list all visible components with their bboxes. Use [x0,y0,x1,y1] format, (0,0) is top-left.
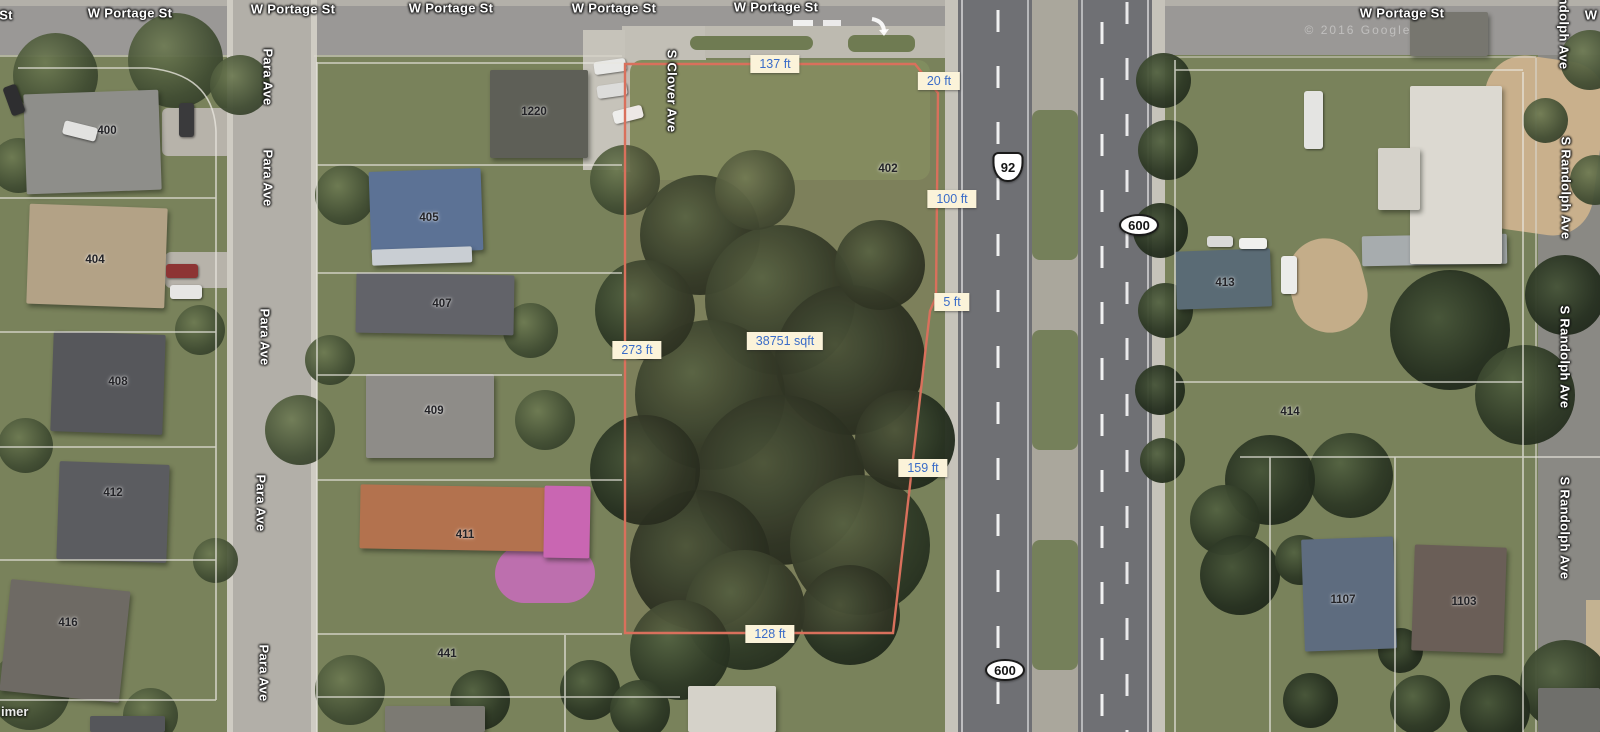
house-number: 441 [437,648,456,660]
house-number: 404 [85,254,104,266]
street-label: S Randolph Ave [1558,306,1573,409]
house-number: 1220 [521,106,547,118]
street-label: W Portage St [251,2,336,17]
house-number: 1103 [1452,596,1477,608]
street-label: S Randolph Ave [1558,477,1573,580]
house-number: 407 [432,298,451,310]
parcel-area-label: 38751 sqft [747,332,823,350]
house-number: 414 [1280,406,1299,418]
house-number: 1107 [1331,594,1356,606]
house-number: 409 [424,405,443,417]
street-label: W Portage St [409,1,494,16]
parcel-measurement-label: 128 ft [745,625,794,643]
street-label: W Portage St [88,6,173,21]
street-label: Para Ave [261,149,276,206]
map-canvas[interactable]: StW Portage StW Portage StW Portage StW … [0,0,1600,732]
street-label: W Portage St [1360,6,1445,21]
house-number: 416 [58,617,77,629]
street-label: Para Ave [257,644,272,701]
street-label: W [1585,8,1598,23]
house-number: 412 [103,487,122,499]
disclaimer-text-partial: imer [1,704,28,719]
street-label: St [0,8,13,23]
street-label: ndolph Ave [1557,0,1572,69]
imagery-copyright: © 2016 Google [1305,23,1412,37]
parcel-measurement-label: 5 ft [934,293,969,311]
parcel-measurement-label: 20 ft [918,72,960,90]
route-shield-600: 600 [1119,214,1159,236]
house-number: 405 [419,212,438,224]
parcel-measurement-label: 273 ft [612,341,661,359]
house-number: 402 [878,163,897,175]
parcel-measurement-label: 137 ft [750,55,799,73]
parcel-boundary-overlay [0,0,1600,732]
house-number: 408 [108,376,127,388]
street-label: S Randolph Ave [1559,137,1574,240]
parcel-measurement-label: 159 ft [898,459,947,477]
street-label: Para Ave [254,474,269,531]
street-label: S Clover Ave [665,50,680,133]
street-label: W Portage St [734,0,819,15]
street-label: Para Ave [258,308,273,365]
house-number: 400 [97,125,116,137]
house-number: 413 [1215,277,1234,289]
parcel-measurement-label: 100 ft [927,190,976,208]
house-number: 411 [456,529,475,541]
route-shield-600: 600 [985,659,1025,681]
street-label: Para Ave [261,48,276,105]
street-label: W Portage St [572,1,657,16]
